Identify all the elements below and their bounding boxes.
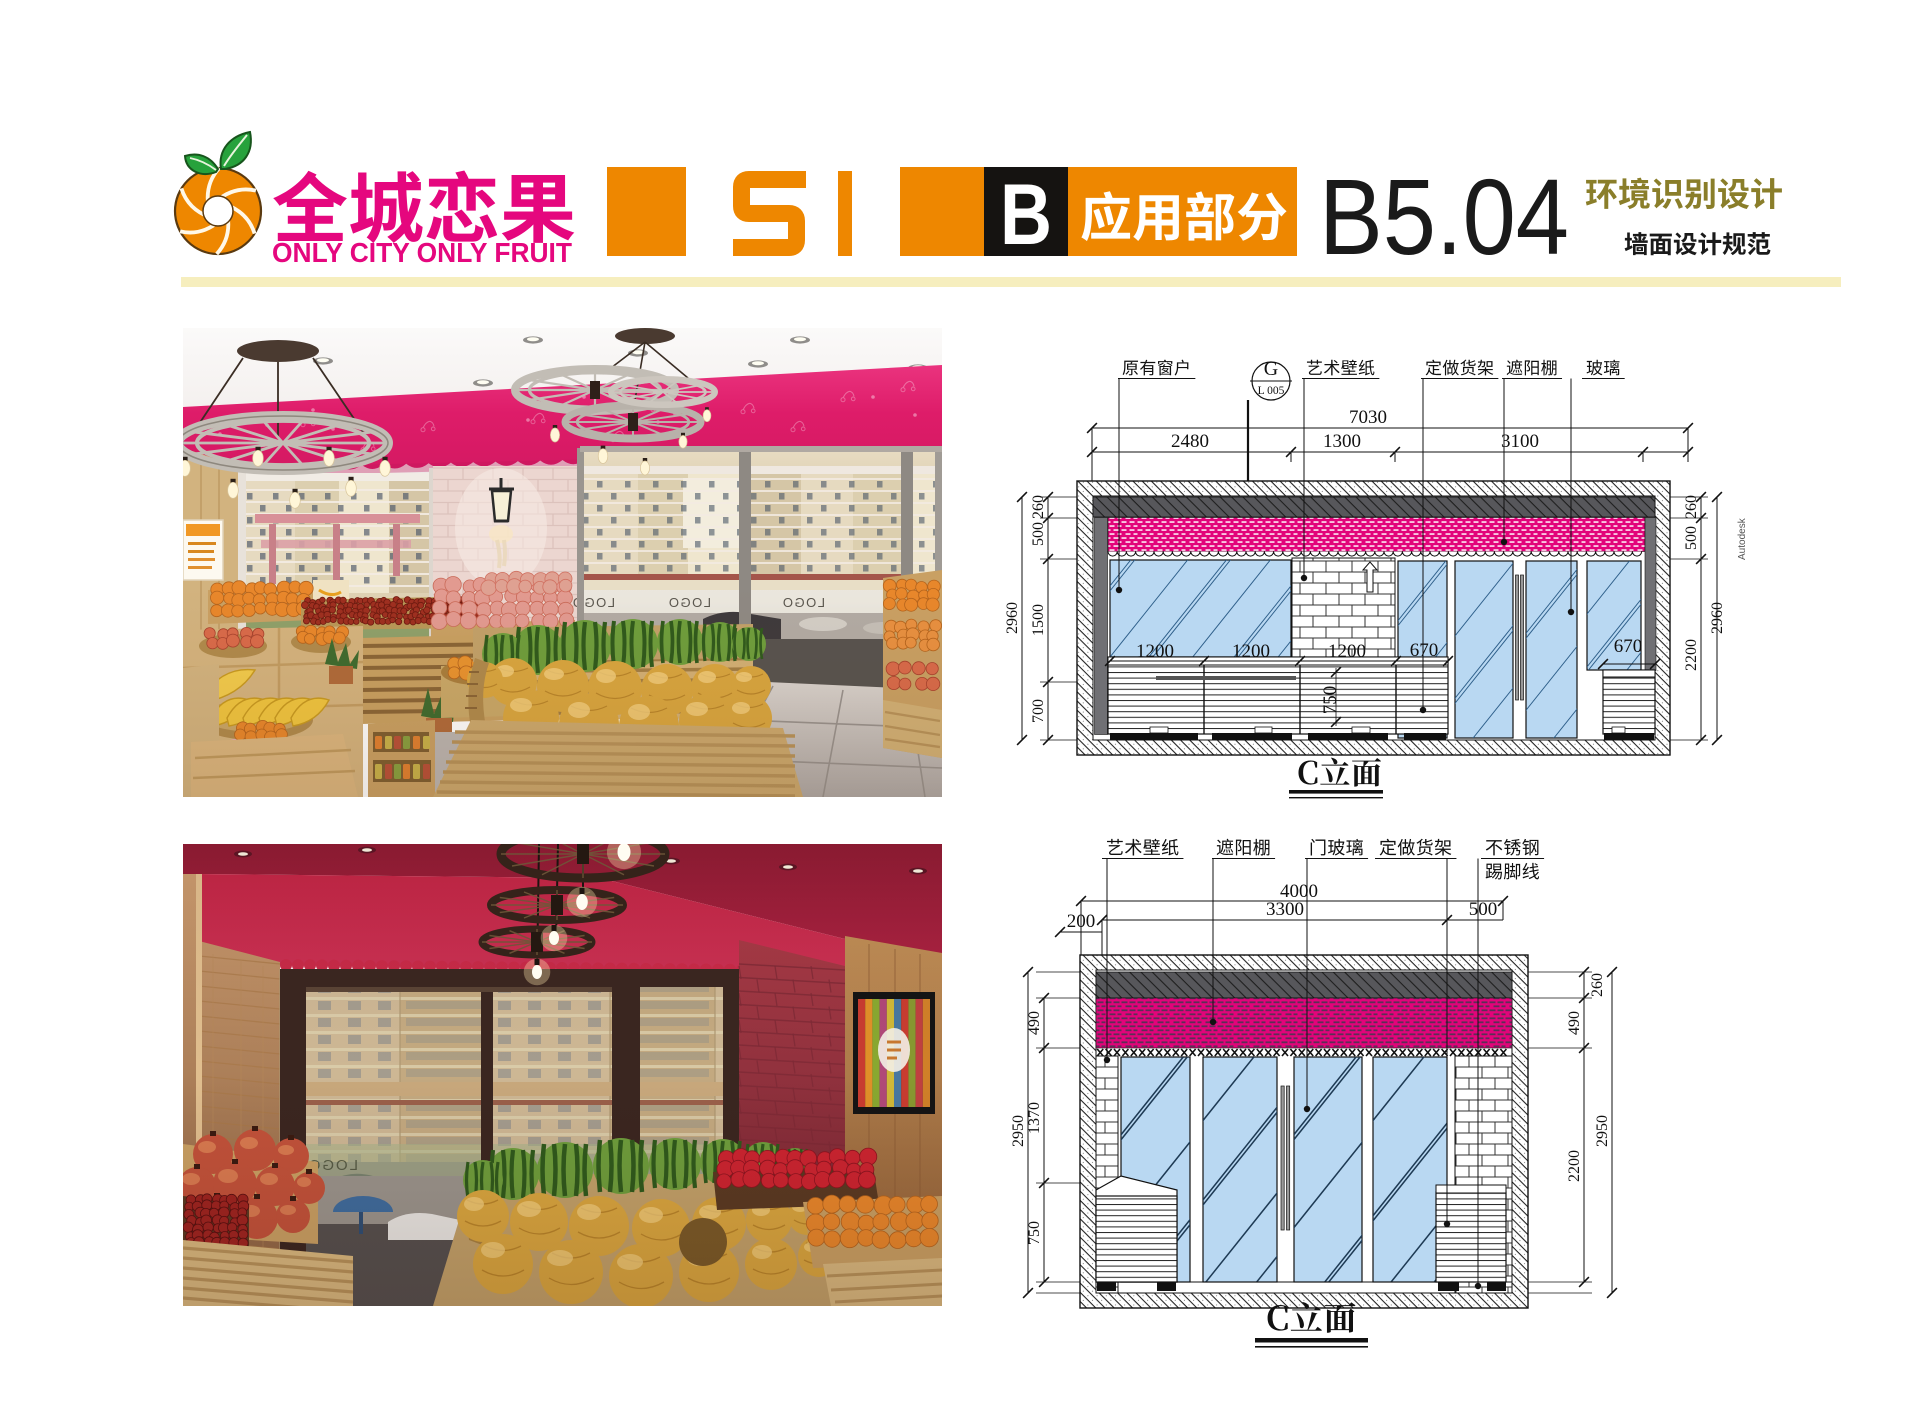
svg-text:700: 700 xyxy=(1030,699,1047,723)
svg-text:3100: 3100 xyxy=(1501,431,1539,452)
svg-text:1200: 1200 xyxy=(1328,641,1366,662)
svg-text:ONLY CITY ONLY FRUIT: ONLY CITY ONLY FRUIT xyxy=(272,237,572,268)
svg-text:2480: 2480 xyxy=(1171,431,1209,452)
svg-text:1500: 1500 xyxy=(1030,604,1047,636)
svg-text:Autodesk: Autodesk xyxy=(1737,517,1748,560)
svg-text:750: 750 xyxy=(1320,686,1341,715)
svg-text:2960: 2960 xyxy=(1709,602,1726,634)
svg-text:1300: 1300 xyxy=(1323,431,1361,452)
svg-text:1200: 1200 xyxy=(1232,641,1270,662)
svg-text:G: G xyxy=(1264,358,1278,380)
svg-text:490: 490 xyxy=(1026,1011,1043,1035)
svg-text:3300: 3300 xyxy=(1266,899,1304,920)
svg-text:1200: 1200 xyxy=(1136,641,1174,662)
svg-text:200: 200 xyxy=(1067,911,1096,932)
svg-text:500: 500 xyxy=(1030,522,1047,546)
svg-text:260: 260 xyxy=(1030,495,1047,519)
svg-text:L 005: L 005 xyxy=(1258,385,1285,397)
svg-text:260: 260 xyxy=(1589,973,1606,997)
svg-text:500: 500 xyxy=(1469,899,1498,920)
svg-text:490: 490 xyxy=(1566,1011,1583,1035)
svg-text:2200: 2200 xyxy=(1683,639,1700,671)
svg-text:2200: 2200 xyxy=(1566,1150,1583,1182)
svg-text:B: B xyxy=(1000,167,1052,256)
svg-text:2950: 2950 xyxy=(1594,1115,1611,1147)
svg-text:2960: 2960 xyxy=(1004,602,1021,634)
svg-text:7030: 7030 xyxy=(1349,407,1387,428)
svg-text:670: 670 xyxy=(1410,640,1439,661)
svg-text:670: 670 xyxy=(1614,636,1643,657)
svg-text:1370: 1370 xyxy=(1026,1102,1043,1134)
svg-text:500: 500 xyxy=(1683,526,1700,550)
svg-text:2950: 2950 xyxy=(1010,1115,1027,1147)
svg-text:750: 750 xyxy=(1026,1221,1043,1245)
svg-text:B5.04: B5.04 xyxy=(1319,156,1569,265)
svg-text:260: 260 xyxy=(1683,495,1700,519)
